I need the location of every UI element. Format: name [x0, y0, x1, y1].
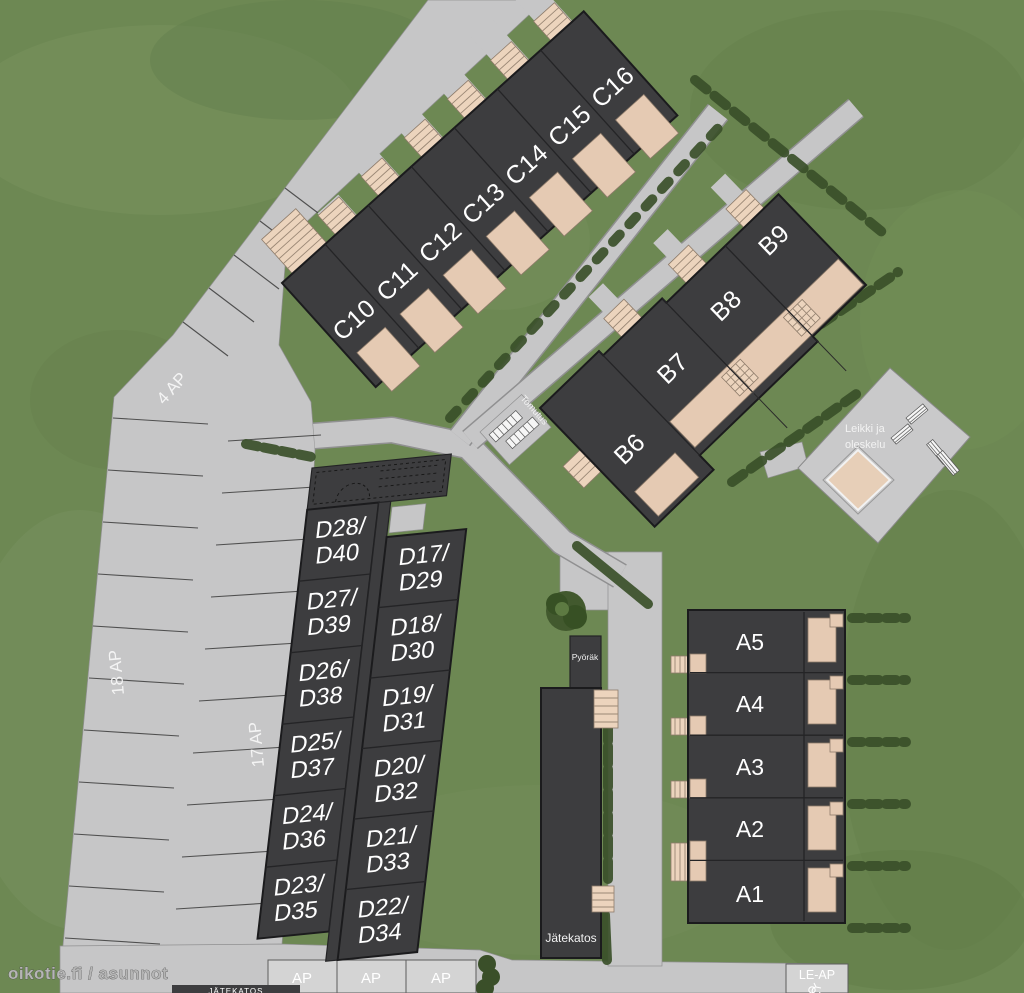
bike-shelter: [570, 636, 601, 688]
unit-label-a2: A2: [736, 816, 764, 842]
watermark: oikotie.fi / asunnot: [8, 964, 168, 983]
bike-shelter-label: Pyöräk: [572, 652, 599, 662]
unit-label-a3: A3: [736, 754, 764, 780]
ap-stall-label-2: AP: [361, 970, 381, 987]
parking-label-17ap: 17 AP: [245, 721, 268, 768]
unit-label-a5: A5: [736, 629, 764, 655]
waste-shelter-clipped: JÄTEKATOS: [172, 985, 300, 993]
le-ap-stall: LE-AP: [786, 964, 848, 993]
site-plan-canvas: 4 AP 18 AP 17 AP AP AP AP LE-AP: [0, 0, 1024, 993]
parking-label-18ap: 18 AP: [105, 649, 128, 696]
ap-stall-label-3: AP: [431, 970, 451, 987]
ap-stall-label-1: AP: [292, 970, 312, 987]
le-ap-label: LE-AP: [799, 968, 835, 982]
waste-shelter-building: [541, 688, 601, 958]
waste-shelter-label: Jätekatos: [545, 931, 596, 945]
site-plan: 4 AP 18 AP 17 AP AP AP AP LE-AP: [0, 0, 1024, 993]
building-row-a: A5 A4 A3 A2 A1: [671, 610, 845, 923]
shelter-stair: [592, 886, 614, 912]
waste-shelter-clipped-label: JÄTEKATOS: [209, 987, 264, 993]
unit-label-a4: A4: [736, 691, 764, 717]
unit-label-a1: A1: [736, 881, 764, 907]
